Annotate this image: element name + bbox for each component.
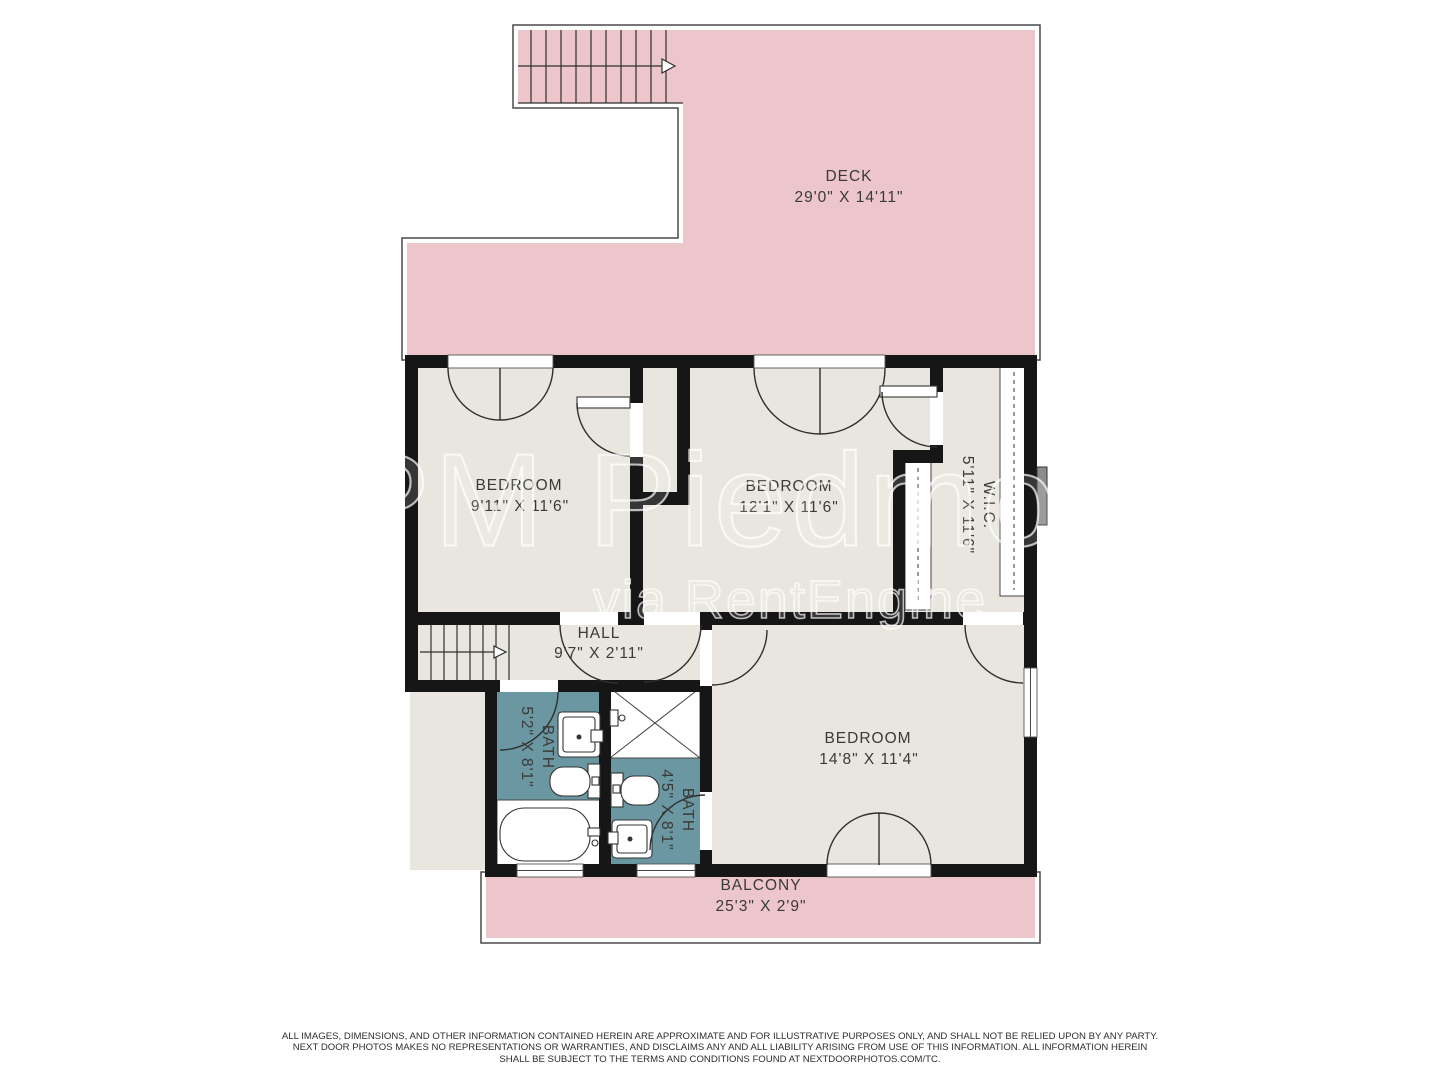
- deck-area: [402, 25, 1040, 360]
- bedroom2-dims: 12'1" X 11'6": [739, 499, 838, 517]
- bedroom3-dims: 14'8" X 11'4": [819, 751, 918, 769]
- disclaimer-line1: ALL IMAGES, DIMENSIONS, AND OTHER INFORM…: [0, 1031, 1440, 1042]
- shower: [610, 688, 700, 758]
- bath1-dims: 5'2" X 8'1": [516, 706, 537, 787]
- balcony-label: BALCONY: [720, 877, 801, 895]
- bath2-dims: 4'5" X 8'1": [656, 769, 677, 850]
- deck-label: DECK: [825, 168, 872, 186]
- wic-name: W.I.C.: [978, 456, 999, 554]
- bath1-label: BATH 5'2" X 8'1": [516, 706, 558, 787]
- floor-plan-drawing: [0, 0, 1440, 1080]
- window-bath2: [637, 864, 695, 877]
- bedroom2-label: BEDROOM: [745, 478, 832, 496]
- bedroom3-label: BEDROOM: [824, 730, 911, 748]
- sink: [608, 820, 652, 858]
- wic-dims: 5'11" X 11'6": [957, 456, 978, 554]
- toilet: [611, 773, 659, 807]
- hall-label: HALL: [578, 625, 621, 643]
- wic-label: W.I.C. 5'11" X 11'6": [957, 456, 999, 554]
- floor-plan: DECK 29'0" X 14'11" BEDROOM 9'11" X 11'6…: [0, 0, 1440, 1080]
- disclaimer-line2: NEXT DOOR PHOTOS MAKES NO REPRESENTATION…: [0, 1042, 1440, 1053]
- disclaimer: ALL IMAGES, DIMENSIONS, AND OTHER INFORM…: [0, 1031, 1440, 1065]
- window-bath1: [517, 864, 583, 877]
- disclaimer-line3: SHALL BE SUBJECT TO THE TERMS AND CONDIT…: [0, 1054, 1440, 1065]
- hall-dims: 9'7" X 2'11": [554, 645, 644, 663]
- bath1-name: BATH: [537, 706, 558, 787]
- deck-dims: 29'0" X 14'11": [794, 189, 903, 207]
- balcony-dims: 25'3" X 2'9": [716, 898, 807, 916]
- window-right: [1024, 668, 1037, 737]
- bath2-name: BATH: [677, 769, 698, 850]
- bedroom1-label: BEDROOM: [475, 477, 562, 495]
- bedroom1-dims: 9'11" X 11'6": [471, 498, 569, 516]
- bath2-label: BATH 4'5" X 8'1": [656, 769, 698, 850]
- sink: [558, 712, 603, 757]
- chimney: [1037, 467, 1047, 525]
